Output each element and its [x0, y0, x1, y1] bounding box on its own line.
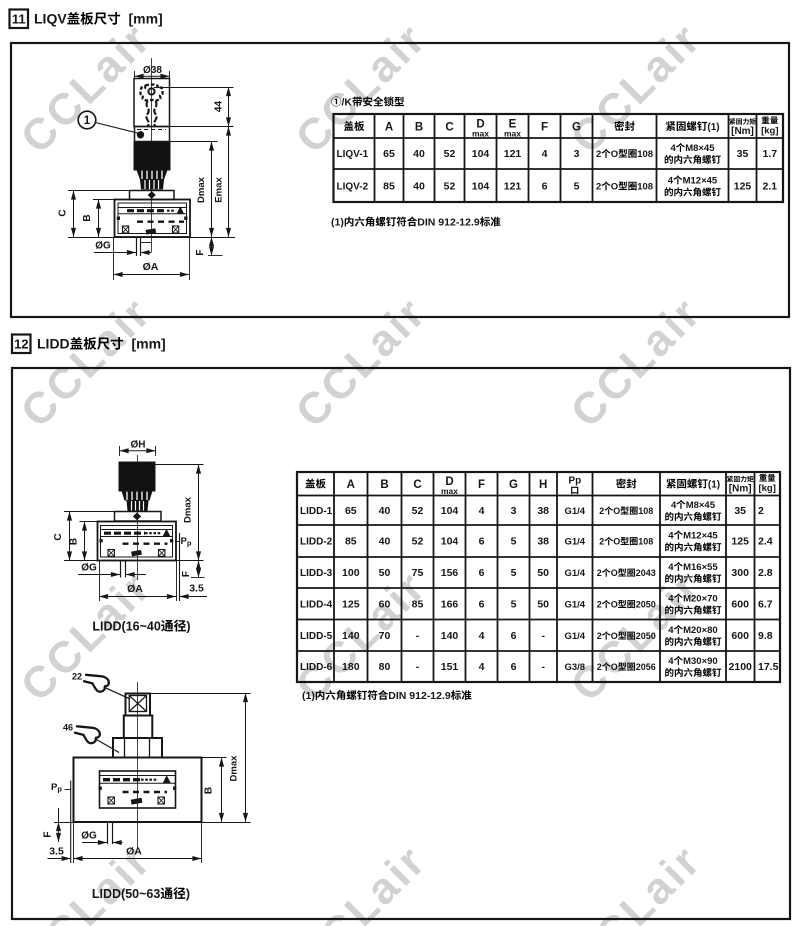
svg-text:LIQV-1: LIQV-1	[337, 149, 369, 160]
svg-text:44: 44	[214, 101, 225, 113]
svg-text:CCLair: CCLair	[287, 288, 436, 437]
svg-text:104: 104	[472, 148, 490, 160]
svg-text:LIDD(16~40: LIDD(16~40	[92, 620, 160, 634]
svg-text:max: max	[472, 129, 489, 139]
svg-text:180: 180	[342, 661, 360, 673]
svg-text:LIQV-2: LIQV-2	[337, 182, 369, 193]
svg-text:1.7: 1.7	[762, 148, 777, 160]
svg-text:50: 50	[537, 599, 549, 611]
svg-text:6: 6	[542, 181, 548, 193]
svg-text:2: 2	[596, 182, 601, 193]
svg-text:4: 4	[668, 562, 674, 573]
svg-text:35: 35	[737, 148, 749, 160]
svg-text:B: B	[380, 479, 388, 491]
svg-text:40: 40	[379, 536, 391, 548]
svg-text:100: 100	[342, 567, 360, 579]
svg-text:CCLair: CCLair	[562, 836, 711, 926]
svg-text:2100: 2100	[729, 661, 753, 673]
svg-text:O: O	[611, 631, 618, 641]
svg-text:151: 151	[441, 661, 459, 673]
svg-text:O: O	[611, 182, 618, 193]
svg-text:C: C	[58, 209, 69, 216]
svg-text:5: 5	[511, 536, 517, 548]
svg-text:ØA: ØA	[126, 846, 142, 858]
svg-text:75: 75	[412, 567, 424, 579]
svg-text:LIDD-6: LIDD-6	[300, 662, 333, 673]
svg-text:Dmax: Dmax	[183, 496, 194, 523]
svg-text:Dmax: Dmax	[229, 755, 240, 782]
svg-text:4: 4	[542, 148, 548, 160]
svg-text:2: 2	[599, 537, 604, 547]
svg-text:LIDD-2: LIDD-2	[300, 537, 333, 548]
svg-text:M8×45: M8×45	[685, 143, 715, 154]
svg-text:2: 2	[596, 149, 601, 160]
svg-text:2: 2	[597, 662, 602, 672]
svg-text:6: 6	[511, 630, 517, 642]
svg-text:4: 4	[668, 594, 674, 605]
svg-text:(1): (1)	[708, 480, 720, 491]
svg-text:G1/4: G1/4	[564, 631, 585, 642]
svg-text:166: 166	[441, 599, 459, 611]
svg-text:CCLair: CCLair	[562, 14, 711, 163]
svg-text:ØG: ØG	[95, 241, 111, 252]
svg-text:LIDD-4: LIDD-4	[300, 600, 333, 611]
svg-text:G: G	[572, 122, 581, 134]
svg-text:6.7: 6.7	[758, 599, 773, 611]
svg-text:G: G	[509, 479, 518, 491]
svg-text:G1/4: G1/4	[564, 537, 585, 548]
svg-text:38: 38	[537, 536, 549, 548]
svg-text:52: 52	[444, 181, 456, 193]
svg-text:O: O	[613, 506, 620, 516]
svg-text:2.4: 2.4	[758, 536, 773, 548]
svg-text:F: F	[478, 479, 485, 491]
svg-text:140: 140	[342, 630, 360, 642]
svg-text:B: B	[69, 538, 80, 545]
svg-text:A: A	[385, 122, 393, 134]
svg-text:2043: 2043	[636, 568, 656, 578]
svg-text:125: 125	[731, 536, 749, 548]
svg-text:38: 38	[537, 505, 549, 517]
svg-text:2: 2	[597, 631, 602, 641]
svg-text:85: 85	[345, 536, 357, 548]
svg-text:4: 4	[668, 531, 674, 542]
svg-text:F: F	[541, 122, 548, 134]
svg-text:F: F	[181, 571, 192, 577]
svg-text:4: 4	[479, 661, 485, 673]
svg-text:4: 4	[479, 505, 485, 517]
svg-text:121: 121	[504, 148, 522, 160]
svg-text:M30×90: M30×90	[683, 656, 718, 667]
svg-text:125: 125	[342, 599, 360, 611]
svg-text:O: O	[611, 568, 618, 578]
svg-text:52: 52	[412, 505, 424, 517]
svg-text:O: O	[611, 149, 618, 160]
svg-text:ØA: ØA	[127, 583, 143, 595]
svg-text:108: 108	[637, 182, 653, 193]
svg-text:O: O	[611, 600, 618, 610]
svg-text:O: O	[613, 537, 620, 547]
svg-text:[mm]: [mm]	[124, 336, 166, 352]
svg-text:50: 50	[537, 567, 549, 579]
svg-text:35: 35	[734, 505, 746, 517]
svg-text:2.1: 2.1	[762, 181, 777, 193]
svg-text:-: -	[541, 661, 545, 673]
svg-text:Pp: Pp	[51, 782, 62, 794]
svg-text:65: 65	[383, 148, 395, 160]
svg-text:[Nm]: [Nm]	[731, 126, 754, 137]
svg-text:22: 22	[72, 672, 82, 682]
svg-text:108: 108	[638, 537, 653, 547]
svg-text:Emax: Emax	[214, 177, 225, 203]
svg-text:ØH: ØH	[131, 440, 146, 451]
svg-text:125: 125	[734, 181, 752, 193]
svg-text:LIDD-1: LIDD-1	[300, 506, 333, 517]
svg-text:ØA: ØA	[143, 261, 159, 273]
svg-text:G1/4: G1/4	[564, 506, 585, 517]
svg-text:60: 60	[379, 599, 391, 611]
svg-text:[kg]: [kg]	[761, 126, 778, 137]
svg-text:5: 5	[511, 567, 517, 579]
svg-text:M20×70: M20×70	[683, 594, 718, 605]
svg-text:4: 4	[668, 656, 674, 667]
svg-text:4: 4	[668, 625, 674, 636]
svg-text:3.5: 3.5	[189, 583, 204, 595]
svg-text:6: 6	[479, 599, 485, 611]
svg-text:104: 104	[441, 536, 459, 548]
svg-text:50: 50	[379, 567, 391, 579]
svg-text:17.5: 17.5	[758, 661, 779, 673]
svg-text:B: B	[415, 122, 423, 134]
svg-text:CCLair: CCLair	[562, 288, 711, 437]
svg-text:12: 12	[14, 337, 28, 352]
svg-text:1: 1	[84, 115, 91, 127]
svg-text:600: 600	[731, 599, 749, 611]
svg-text:Dmax: Dmax	[196, 176, 207, 203]
svg-text:G1/4: G1/4	[564, 600, 585, 611]
svg-text:max: max	[504, 129, 521, 139]
svg-text:52: 52	[412, 536, 424, 548]
svg-text:2: 2	[758, 505, 764, 517]
svg-text:LIDD-3: LIDD-3	[300, 568, 333, 579]
svg-text:CCLair: CCLair	[287, 836, 436, 926]
svg-text:Pp: Pp	[181, 536, 192, 548]
svg-text:4: 4	[671, 143, 677, 154]
svg-text:3.5: 3.5	[49, 846, 64, 858]
svg-text:4: 4	[668, 176, 674, 187]
svg-text:LIDD-5: LIDD-5	[300, 631, 333, 642]
svg-text:140: 140	[441, 630, 459, 642]
svg-text:-: -	[416, 630, 420, 642]
svg-text:ØG: ØG	[81, 831, 97, 842]
svg-text:CCLair: CCLair	[287, 14, 436, 163]
svg-text:Ø38: Ø38	[143, 65, 162, 76]
svg-text:2: 2	[597, 600, 602, 610]
svg-text:108: 108	[638, 506, 653, 516]
svg-text:5: 5	[511, 599, 517, 611]
svg-text:DIN 912-12.9: DIN 912-12.9	[388, 690, 451, 702]
svg-text:B: B	[82, 214, 93, 221]
svg-text:C: C	[53, 533, 64, 540]
svg-text:104: 104	[441, 505, 459, 517]
svg-text:CCLair: CCLair	[12, 288, 161, 437]
svg-text:65: 65	[345, 505, 357, 517]
svg-text:6: 6	[511, 661, 517, 673]
svg-text:B: B	[204, 787, 215, 794]
svg-text:108: 108	[637, 149, 653, 160]
svg-text:85: 85	[383, 181, 395, 193]
svg-text:156: 156	[441, 567, 459, 579]
svg-text:DIN 912-12.9: DIN 912-12.9	[417, 217, 480, 229]
svg-text:M8×45: M8×45	[686, 500, 716, 511]
svg-text:ØG: ØG	[81, 563, 97, 574]
svg-text:): )	[186, 620, 190, 634]
svg-text:11: 11	[12, 12, 26, 27]
svg-text:2.8: 2.8	[758, 567, 773, 579]
svg-text:2: 2	[597, 568, 602, 578]
svg-text:5: 5	[574, 181, 580, 193]
svg-text:O: O	[611, 662, 618, 672]
svg-text:(1): (1)	[331, 217, 344, 229]
svg-text:40: 40	[379, 505, 391, 517]
svg-text:CCLair: CCLair	[12, 14, 161, 163]
svg-text:H: H	[539, 479, 547, 491]
svg-text:G1/4: G1/4	[564, 568, 585, 579]
svg-text:C: C	[445, 122, 453, 134]
svg-text:3: 3	[574, 148, 580, 160]
svg-text:Pp: Pp	[568, 476, 581, 487]
svg-text:(1): (1)	[302, 690, 315, 702]
svg-text:121: 121	[504, 181, 522, 193]
svg-text:300: 300	[731, 567, 749, 579]
svg-text:600: 600	[731, 630, 749, 642]
svg-text:4: 4	[479, 630, 485, 642]
svg-text:LIQV: LIQV	[34, 11, 67, 27]
svg-text:max: max	[441, 486, 458, 496]
svg-text:LIDD(50~63: LIDD(50~63	[92, 887, 160, 901]
svg-text:4: 4	[671, 500, 677, 511]
svg-text:G3/8: G3/8	[564, 662, 585, 673]
svg-text:6: 6	[479, 536, 485, 548]
svg-text:M12×45: M12×45	[683, 531, 718, 542]
svg-text:C: C	[413, 479, 421, 491]
svg-text:6: 6	[479, 567, 485, 579]
svg-text:-: -	[541, 630, 545, 642]
svg-text:M20×80: M20×80	[683, 625, 718, 636]
svg-text:40: 40	[413, 181, 425, 193]
svg-text:52: 52	[444, 148, 456, 160]
svg-text:[Nm]: [Nm]	[729, 484, 752, 495]
svg-text:F: F	[43, 831, 54, 837]
svg-text:M16×55: M16×55	[683, 562, 718, 573]
svg-text:): )	[186, 887, 190, 901]
svg-text:(1): (1)	[707, 122, 719, 133]
svg-text:M12×45: M12×45	[683, 176, 718, 187]
svg-text:[mm]: [mm]	[121, 11, 163, 27]
svg-text:2050: 2050	[636, 600, 656, 610]
svg-text:A: A	[347, 479, 355, 491]
svg-text:85: 85	[412, 599, 424, 611]
svg-text:46: 46	[63, 723, 73, 733]
svg-text:9.8: 9.8	[758, 630, 773, 642]
svg-text:F: F	[195, 249, 206, 255]
svg-text:2: 2	[599, 506, 604, 516]
svg-text:104: 104	[472, 181, 490, 193]
svg-text:-: -	[416, 661, 420, 673]
svg-text:/K: /K	[342, 97, 353, 109]
svg-text:40: 40	[413, 148, 425, 160]
svg-text:LIDD: LIDD	[37, 336, 70, 352]
svg-text:80: 80	[379, 661, 391, 673]
svg-text:[kg]: [kg]	[758, 483, 775, 494]
svg-text:70: 70	[379, 630, 391, 642]
svg-text:2050: 2050	[636, 631, 656, 641]
svg-text:2056: 2056	[636, 662, 656, 672]
svg-text:3: 3	[511, 505, 517, 517]
